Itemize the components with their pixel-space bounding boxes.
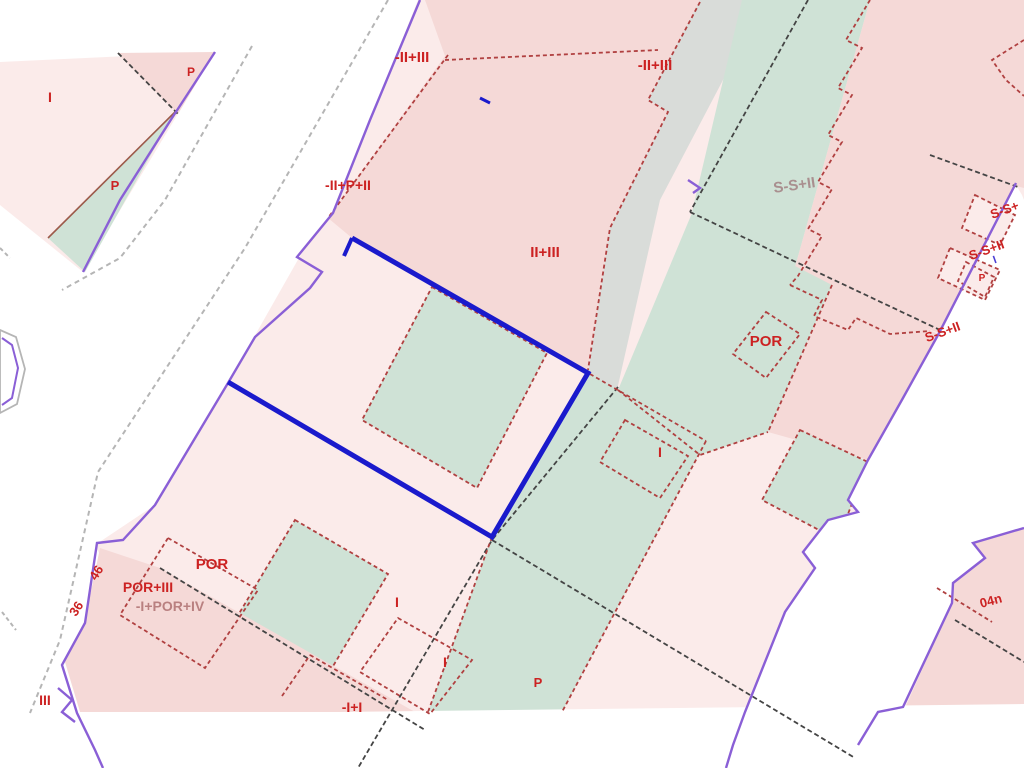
label-storeys: P xyxy=(111,178,120,193)
label-storeys: POR+III xyxy=(123,579,173,595)
label-storeys: I xyxy=(658,444,662,460)
gray-mark-left-2 xyxy=(0,248,10,258)
label-storeys: -II+III xyxy=(395,49,430,66)
label-storeys: III xyxy=(39,692,51,708)
parcel-left-edge-small[interactable] xyxy=(0,330,25,413)
label-storeys: -I+I xyxy=(342,699,363,715)
label-storeys: P xyxy=(979,273,986,284)
label-storeys: I xyxy=(48,89,52,105)
label-storeys: P xyxy=(187,65,195,79)
street-bottom-white[interactable] xyxy=(0,704,1024,768)
label-storeys: I xyxy=(395,594,399,610)
label-porch: POR xyxy=(196,556,229,573)
label-porch: POR xyxy=(750,333,783,350)
label-storeys: P xyxy=(534,675,543,690)
label-storeys: -I+POR+IV xyxy=(136,598,205,614)
map-canvas[interactable]: -II+III-II+III-II+P+IIII+IIIS-S+IIS-S+S-… xyxy=(0,0,1024,768)
cadastral-map: -II+III-II+III-II+P+IIII+IIIS-S+IIS-S+S-… xyxy=(0,0,1024,768)
label-storeys: -II+P+II xyxy=(325,177,371,193)
label-storeys: II+III xyxy=(530,244,560,261)
label-storeys: -II+III xyxy=(638,57,673,74)
gray-mark-left-1 xyxy=(2,612,16,630)
label-storeys: I xyxy=(443,654,447,670)
